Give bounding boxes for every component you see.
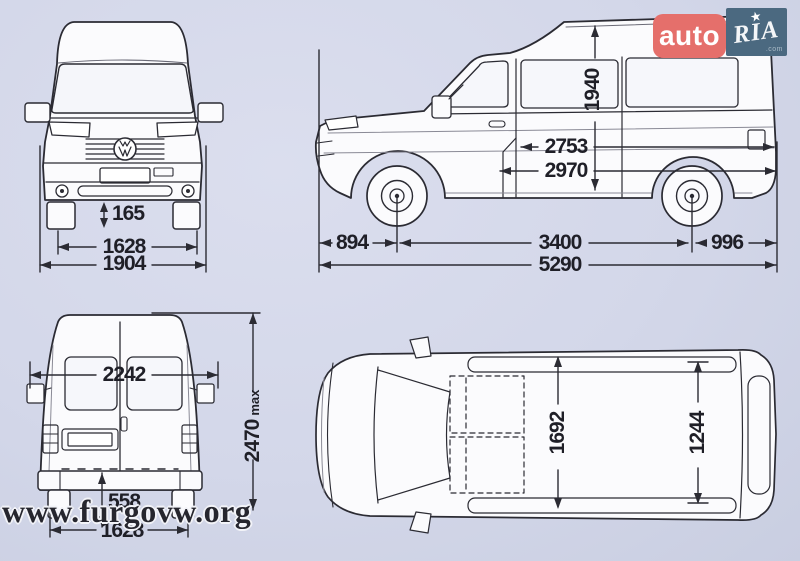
dim-front-overall-width: 1904	[103, 252, 146, 276]
front-mirror-left	[25, 103, 50, 122]
dim-side-cargo-lower: 2970	[545, 159, 588, 183]
dim-side-rear-overhang: 996	[711, 231, 743, 255]
front-wheel-right	[173, 202, 200, 229]
front-windshield	[52, 64, 193, 113]
dim-side-overall-length: 5290	[539, 253, 582, 277]
front-mirror-right	[198, 103, 223, 122]
side-mirror	[432, 96, 451, 118]
rear-bumper	[38, 471, 202, 490]
side-window-rear	[626, 58, 738, 107]
dim-rear-overall-height-value: 2470	[241, 420, 264, 463]
dim-top-arch-width: 1244	[686, 412, 710, 455]
dim-side-wheelbase: 3400	[539, 231, 582, 255]
front-headlight-right	[157, 122, 198, 137]
front-license-recess	[100, 168, 150, 183]
dim-rear-width-mirrors: 2242	[103, 363, 146, 387]
vw-logo-icon	[114, 138, 136, 160]
dim-front-ground-clearance: 165	[112, 202, 144, 226]
dim-top-interior-width: 1692	[546, 412, 570, 455]
auto-logo-label: auto	[659, 22, 720, 50]
dim-side-cargo-upper: 2753	[545, 135, 588, 159]
front-wheel-left	[47, 202, 75, 229]
side-headlight	[325, 116, 358, 130]
blueprint-stage: 165 1628 1904 1940 2753 2970 894 3400 99…	[0, 0, 800, 561]
dim-rear-overall-height-suffix: max	[247, 390, 262, 416]
auto-logo-badge: auto	[653, 14, 726, 58]
ria-logo-badge: ★ RIA .com	[726, 8, 787, 56]
front-body	[25, 22, 223, 229]
rear-license-plate	[68, 433, 112, 446]
site-watermark: www.furgovw.org	[2, 493, 251, 530]
dim-side-front-overhang: 894	[336, 231, 368, 255]
auto-ria-logo: auto ★ RIA .com	[653, 8, 787, 57]
dim-side-roof-height: 1940	[581, 69, 605, 112]
ria-logo-label: RIA	[731, 17, 780, 48]
rear-mirror-right	[197, 384, 214, 403]
rear-body	[27, 315, 214, 518]
dim-rear-overall-height: 2470max	[241, 390, 265, 463]
ria-domain-label: .com	[766, 46, 783, 53]
front-headlight-left	[49, 122, 90, 137]
